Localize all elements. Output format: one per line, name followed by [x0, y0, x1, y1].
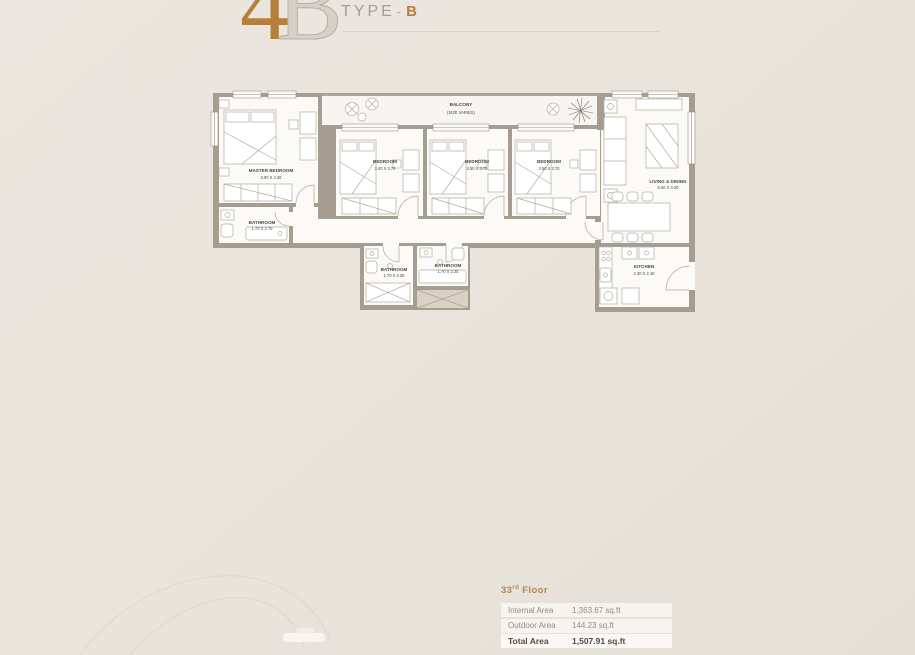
balcony-size: (SIZE VARIES) [447, 110, 475, 115]
area-row-internal: Internal Area 1,363.67 sq.ft [501, 603, 672, 617]
living-dining-size: 5.00 X 3.20 [658, 185, 680, 190]
floorplan: BALCONY (SIZE VARIES) MASTER BEDROOM 3.9… [0, 0, 915, 655]
kitchen-size: 2.30 X 2.40 [634, 271, 656, 276]
area-table: Internal Area 1,363.67 sq.ft Outdoor Are… [501, 603, 672, 648]
bedroom-3-label: BEDROOM [537, 159, 561, 164]
master-bathroom-label: BATHROOM [249, 220, 276, 225]
bedroom-2-size: 3.50 X 3.70 [467, 166, 489, 171]
bedroom-3-size: 3.50 X 3.70 [539, 166, 561, 171]
floor-suffix: rd [512, 585, 519, 591]
balcony-label: BALCONY [450, 102, 473, 107]
area-label: Outdoor Area [508, 621, 572, 630]
watermark-smudge [283, 628, 325, 642]
area-value: 1,507.91 sq.ft [572, 636, 625, 646]
floor-word: Floor [522, 585, 548, 596]
background-contours [80, 576, 330, 655]
area-row-outdoor: Outdoor Area 144.23 sq.ft [501, 619, 672, 633]
master-bedroom-size: 3.90 X 4.30 [261, 175, 283, 180]
area-summary-panel: 33rd Floor Internal Area 1,363.67 sq.ft … [501, 585, 672, 650]
bedroom-2-label: BEDROOM [465, 159, 489, 164]
bathroom-2-size: 1.70 X 2.30 [438, 269, 460, 274]
living-dining-label: LIVING & DINING [649, 179, 687, 184]
bedroom-1-size: 3.40 X 3.70 [375, 166, 397, 171]
floor-title: 33rd Floor [501, 585, 672, 596]
master-bathroom-size: 1.70 X 2.70 [252, 226, 274, 231]
kitchen-label: KITCHEN [634, 264, 655, 269]
master-bedroom-label: MASTER BEDROOM [249, 168, 294, 173]
bathroom-1-size: 1.70 X 2.30 [384, 273, 406, 278]
area-value: 1,363.67 sq.ft [572, 606, 620, 615]
area-label: Internal Area [508, 606, 572, 615]
floor-number: 33 [501, 585, 512, 596]
area-label: Total Area [508, 636, 572, 646]
brochure-page: 4B TYPE-B [0, 0, 915, 655]
area-value: 144.23 sq.ft [572, 621, 614, 630]
bedroom-1-label: BEDROOM [373, 159, 397, 164]
area-row-total: Total Area 1,507.91 sq.ft [501, 634, 672, 648]
bathroom-1-label: BATHROOM [381, 267, 408, 272]
bathroom-2-label: BATHROOM [435, 263, 462, 268]
